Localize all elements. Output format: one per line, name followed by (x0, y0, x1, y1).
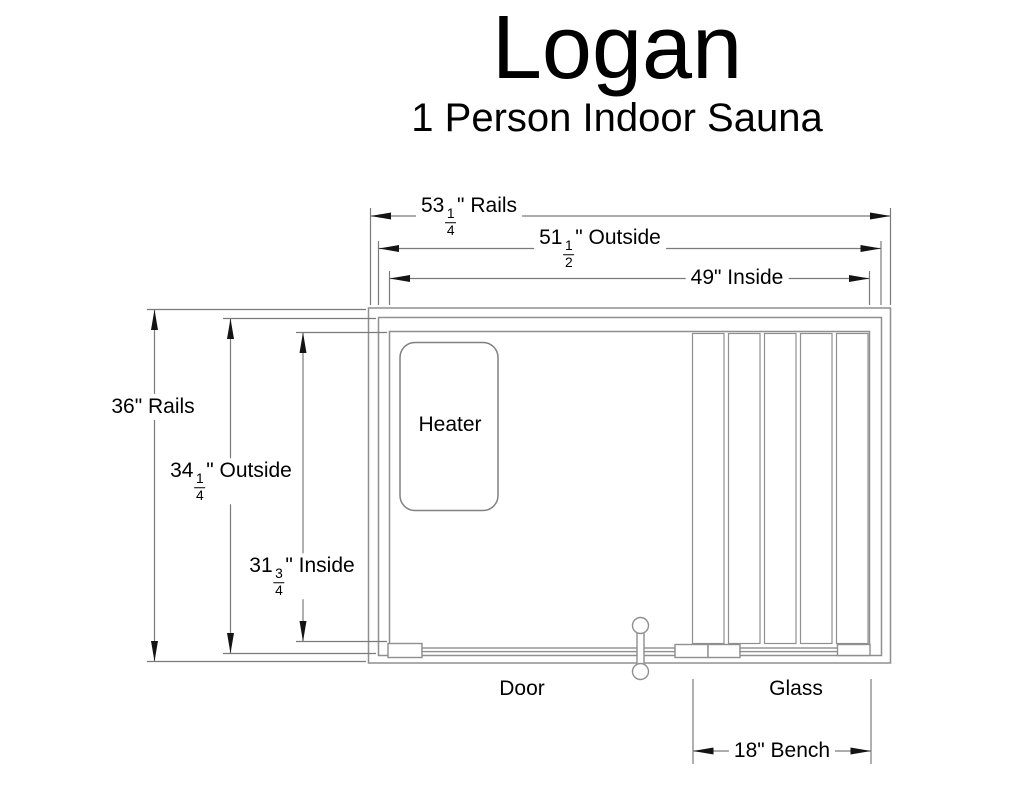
door-label: Door (499, 677, 545, 701)
fraction-denominator: 4 (447, 223, 455, 238)
dim-outside-width-label: 5112" Outside (534, 225, 666, 271)
arrowhead-right (870, 213, 891, 220)
bench-slat (801, 334, 833, 644)
door-handle-knob-bottom (633, 664, 649, 680)
dim-rails-height-label: 36" Rails (106, 394, 199, 420)
arrowhead-right (849, 275, 870, 282)
sauna-floorplan-page: Logan 1 Person Indoor Sauna 5314" Rails … (0, 0, 1024, 791)
arrowhead-left (390, 275, 411, 282)
heater-label: Heater (418, 413, 481, 437)
dim-rails-width-label: 5314" Rails (416, 193, 522, 239)
glass-panel (740, 648, 838, 652)
fraction-denominator: 2 (565, 255, 573, 270)
dim-inside-width-label: 49" Inside (686, 265, 789, 291)
fraction-denominator: 4 (275, 583, 283, 598)
arrowhead-down (151, 641, 158, 662)
arrowhead-down (300, 621, 307, 642)
arrowhead-left (371, 213, 392, 220)
arrowhead-down (227, 633, 234, 654)
fraction: 14 (445, 207, 456, 238)
dim-value: 51 (539, 226, 562, 249)
arrowhead-up (227, 319, 234, 340)
arrowhead-right (861, 245, 882, 252)
glass-label: Glass (769, 677, 823, 701)
bench-slat (693, 334, 725, 644)
arrowhead-left (379, 245, 400, 252)
door-handle-knob-top (633, 618, 649, 634)
dim-outside-height-label: 3414" Outside (165, 458, 297, 504)
dim-inside-height-label: 3134" Inside (244, 553, 359, 599)
door-jamb-right (675, 645, 708, 658)
dim-value: 34 (170, 459, 193, 482)
arrowhead-right (851, 748, 872, 755)
dim-bench-label: 18" Bench (729, 738, 835, 764)
page-title: Logan (105, 0, 1024, 97)
arrowhead-up (151, 310, 158, 331)
fraction-numerator: 1 (194, 472, 205, 488)
fraction-numerator: 1 (445, 207, 456, 223)
fraction-denominator: 4 (196, 488, 204, 503)
fraction: 14 (194, 472, 205, 503)
dim-suffix: " Rails (457, 194, 517, 217)
dim-suffix: " Outside (575, 226, 661, 249)
dim-value: 31 (249, 554, 272, 577)
bench-slat (729, 334, 761, 644)
dim-suffix: " Inside (285, 554, 354, 577)
dim-value: 53 (421, 194, 444, 217)
fraction-numerator: 1 (563, 239, 574, 255)
fraction-numerator: 3 (274, 567, 285, 583)
bench-slat (837, 334, 869, 644)
dim-suffix: " Outside (206, 459, 292, 482)
fraction: 12 (563, 239, 574, 270)
page-subtitle: 1 Person Indoor Sauna (105, 96, 1024, 140)
fraction: 34 (274, 567, 285, 598)
door-jamb-left (388, 644, 422, 658)
arrowhead-up (300, 333, 307, 354)
glass-jamb (708, 645, 740, 658)
arrowhead-left (693, 748, 714, 755)
bench-slat (765, 334, 797, 644)
bench-support-right (838, 645, 871, 656)
